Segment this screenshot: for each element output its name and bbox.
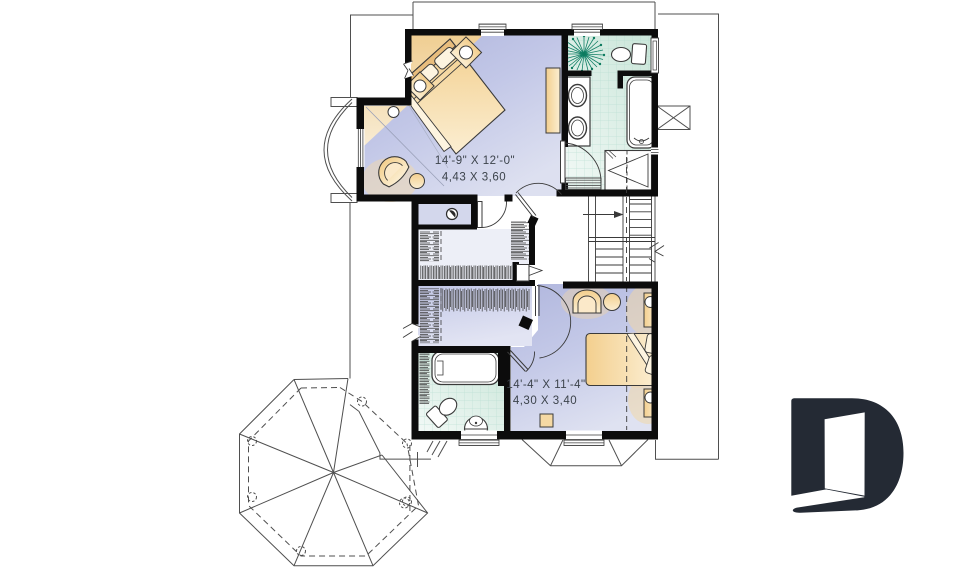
svg-text:14'-4" X 11'-4": 14'-4" X 11'-4" bbox=[506, 379, 585, 391]
svg-text:4,30 X 3,40: 4,30 X 3,40 bbox=[513, 395, 577, 407]
svg-text:14'-9" X 12'-0": 14'-9" X 12'-0" bbox=[435, 155, 515, 167]
svg-text:4,43 X 3,60: 4,43 X 3,60 bbox=[442, 172, 506, 184]
